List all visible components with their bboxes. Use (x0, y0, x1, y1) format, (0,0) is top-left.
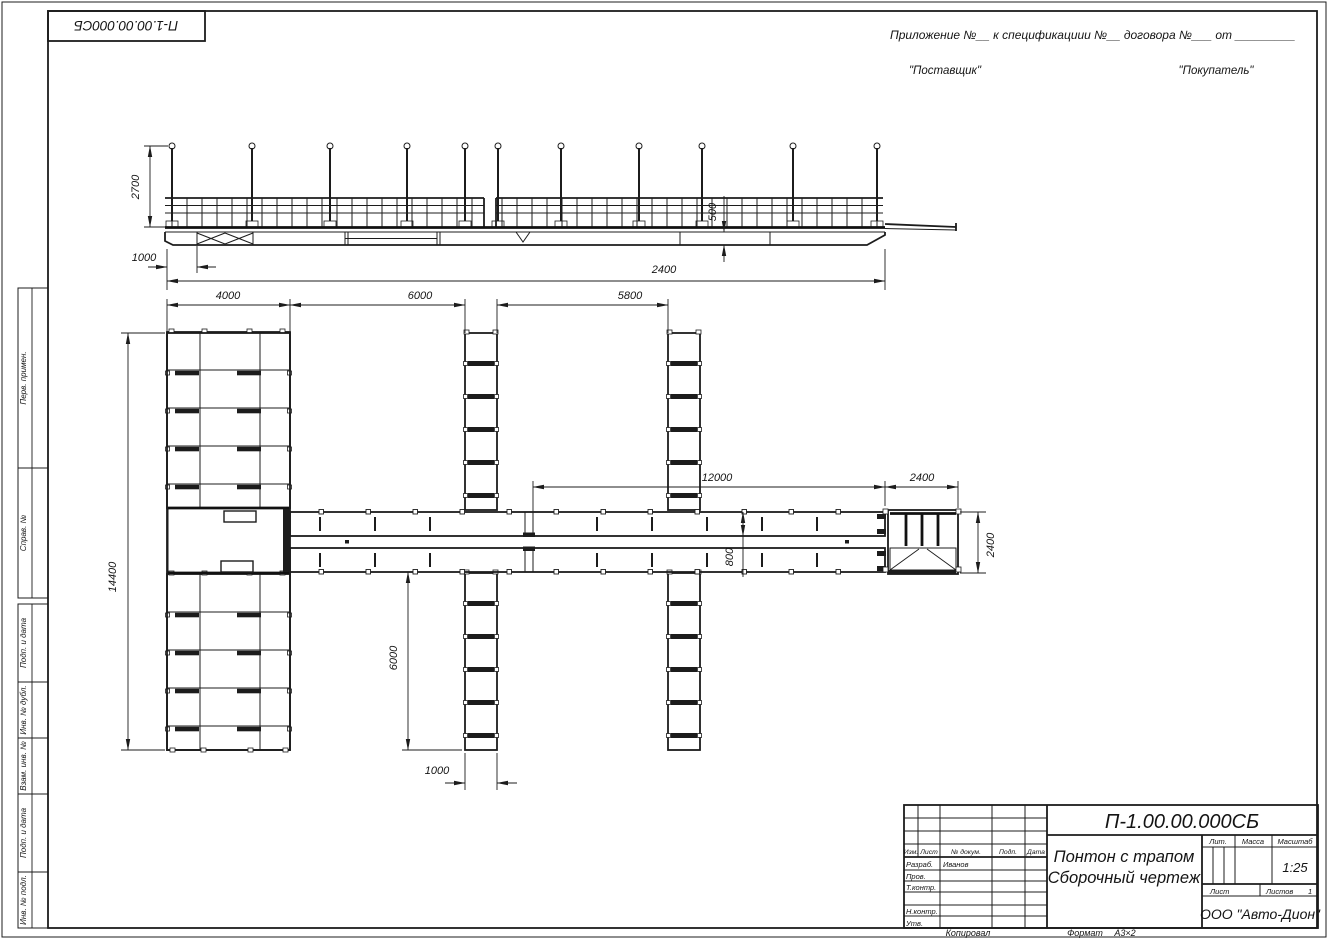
tb-title-line2: Сборочный чертеж (1048, 869, 1201, 887)
header-line1: Приложение №__ к спецификациии №__ догов… (890, 28, 1295, 42)
tb-col-podp: Подп. (999, 848, 1017, 856)
dim-4000-label: 4000 (216, 290, 241, 302)
dim-2400-top-label: 2400 (909, 472, 935, 484)
tb-scale-value: 1:25 (1282, 860, 1308, 875)
dim-1000-side-label: 1000 (132, 252, 157, 264)
sheet-frame (2, 2, 1326, 937)
footer-format-label: Формат (1067, 928, 1103, 938)
tb-col-data: Дата (1026, 849, 1045, 856)
header-buyer: "Покупатель" (1179, 65, 1255, 77)
header-block: Приложение №__ к спецификациии №__ догов… (890, 28, 1295, 77)
tb-row-nkontr: Н.контр. (906, 907, 938, 916)
side-view (165, 143, 956, 245)
dim-500-label: 500 (707, 202, 719, 221)
tb-row-prov: Пров. (906, 872, 926, 881)
margin-label-perv-primen: Перв. примен. (19, 351, 28, 404)
dim-14400-label: 14400 (107, 561, 119, 592)
plan-view (166, 329, 962, 752)
dim-1000-bottom-label: 1000 (425, 765, 450, 777)
margin-label-podp-data-2: Подп. и дата (19, 807, 28, 858)
scissor-brace (197, 232, 253, 245)
footer-copied: Копировал (946, 928, 991, 938)
dim-12000-label: 12000 (702, 472, 733, 484)
shore-pontoon (883, 509, 961, 574)
tb-title-line1: Понтон с трапом (1054, 848, 1195, 866)
dim-6000-bottom-label: 6000 (388, 645, 400, 670)
header-supplier: "Поставщик" (909, 65, 982, 77)
tb-row-razrab: Разраб. (906, 860, 933, 869)
tb-col-list: Лист (919, 849, 938, 856)
dim-2400-right-label: 2400 (985, 532, 997, 558)
top-left-stamp-text: П-1.00.00.000СБ (74, 18, 178, 33)
tb-designation: П-1.00.00.000СБ (1105, 811, 1259, 833)
tb-list-label: Лист (1209, 887, 1229, 896)
drawing-sheet: П-1.00.00.000СБ Приложение №__ к специфи… (0, 0, 1328, 939)
top-left-stamp: П-1.00.00.000СБ (48, 11, 205, 41)
tb-col-izm: Изм. (904, 849, 919, 856)
tb-row-tkontr: Т.контр. (906, 883, 936, 892)
tb-row-utv: Утв. (905, 919, 923, 928)
dim-2400-side-label: 2400 (651, 264, 677, 276)
margin-label-sprav: Справ. № (19, 514, 28, 551)
margin-label-inv-dubl: Инв. № дубл. (19, 685, 28, 734)
tb-listov-label: Листов (1265, 887, 1293, 896)
dim-800-label: 800 (724, 547, 736, 566)
footer-format-value: А3×2 (1113, 928, 1135, 938)
margin-label-podp-data-1: Подп. и дата (19, 617, 28, 668)
dim-2700-label: 2700 (130, 174, 142, 200)
tb-masshtab: Масштаб (1277, 837, 1313, 846)
dim-6000-top-label: 6000 (408, 290, 433, 302)
tb-col-doc: № докум. (951, 848, 981, 856)
title-block: Изм. Лист № докум. Подп. Дата Разраб. Ив… (904, 805, 1321, 928)
deck-hatch-module (168, 508, 289, 573)
margin-label-inv-podl: Инв. № подл. (19, 875, 28, 925)
margin-label-vzam-inv: Взам. инв. № (19, 741, 28, 791)
tb-company: ООО "Авто-Дион" (1200, 906, 1321, 922)
tb-listov-value: 1 (1308, 887, 1312, 896)
gangway-plank (885, 223, 956, 231)
drawing-canvas: П-1.00.00.000СБ Приложение №__ к специфи… (0, 0, 1328, 939)
dim-5800-label: 5800 (618, 290, 643, 302)
margin-stamps: Перв. примен. Справ. № Подп. и дата Инв.… (18, 288, 48, 928)
tb-razrab-name: Иванов (943, 860, 969, 869)
walkway (290, 505, 886, 577)
tb-lit: Лит. (1208, 837, 1227, 846)
tb-massa: Масса (1242, 837, 1264, 846)
